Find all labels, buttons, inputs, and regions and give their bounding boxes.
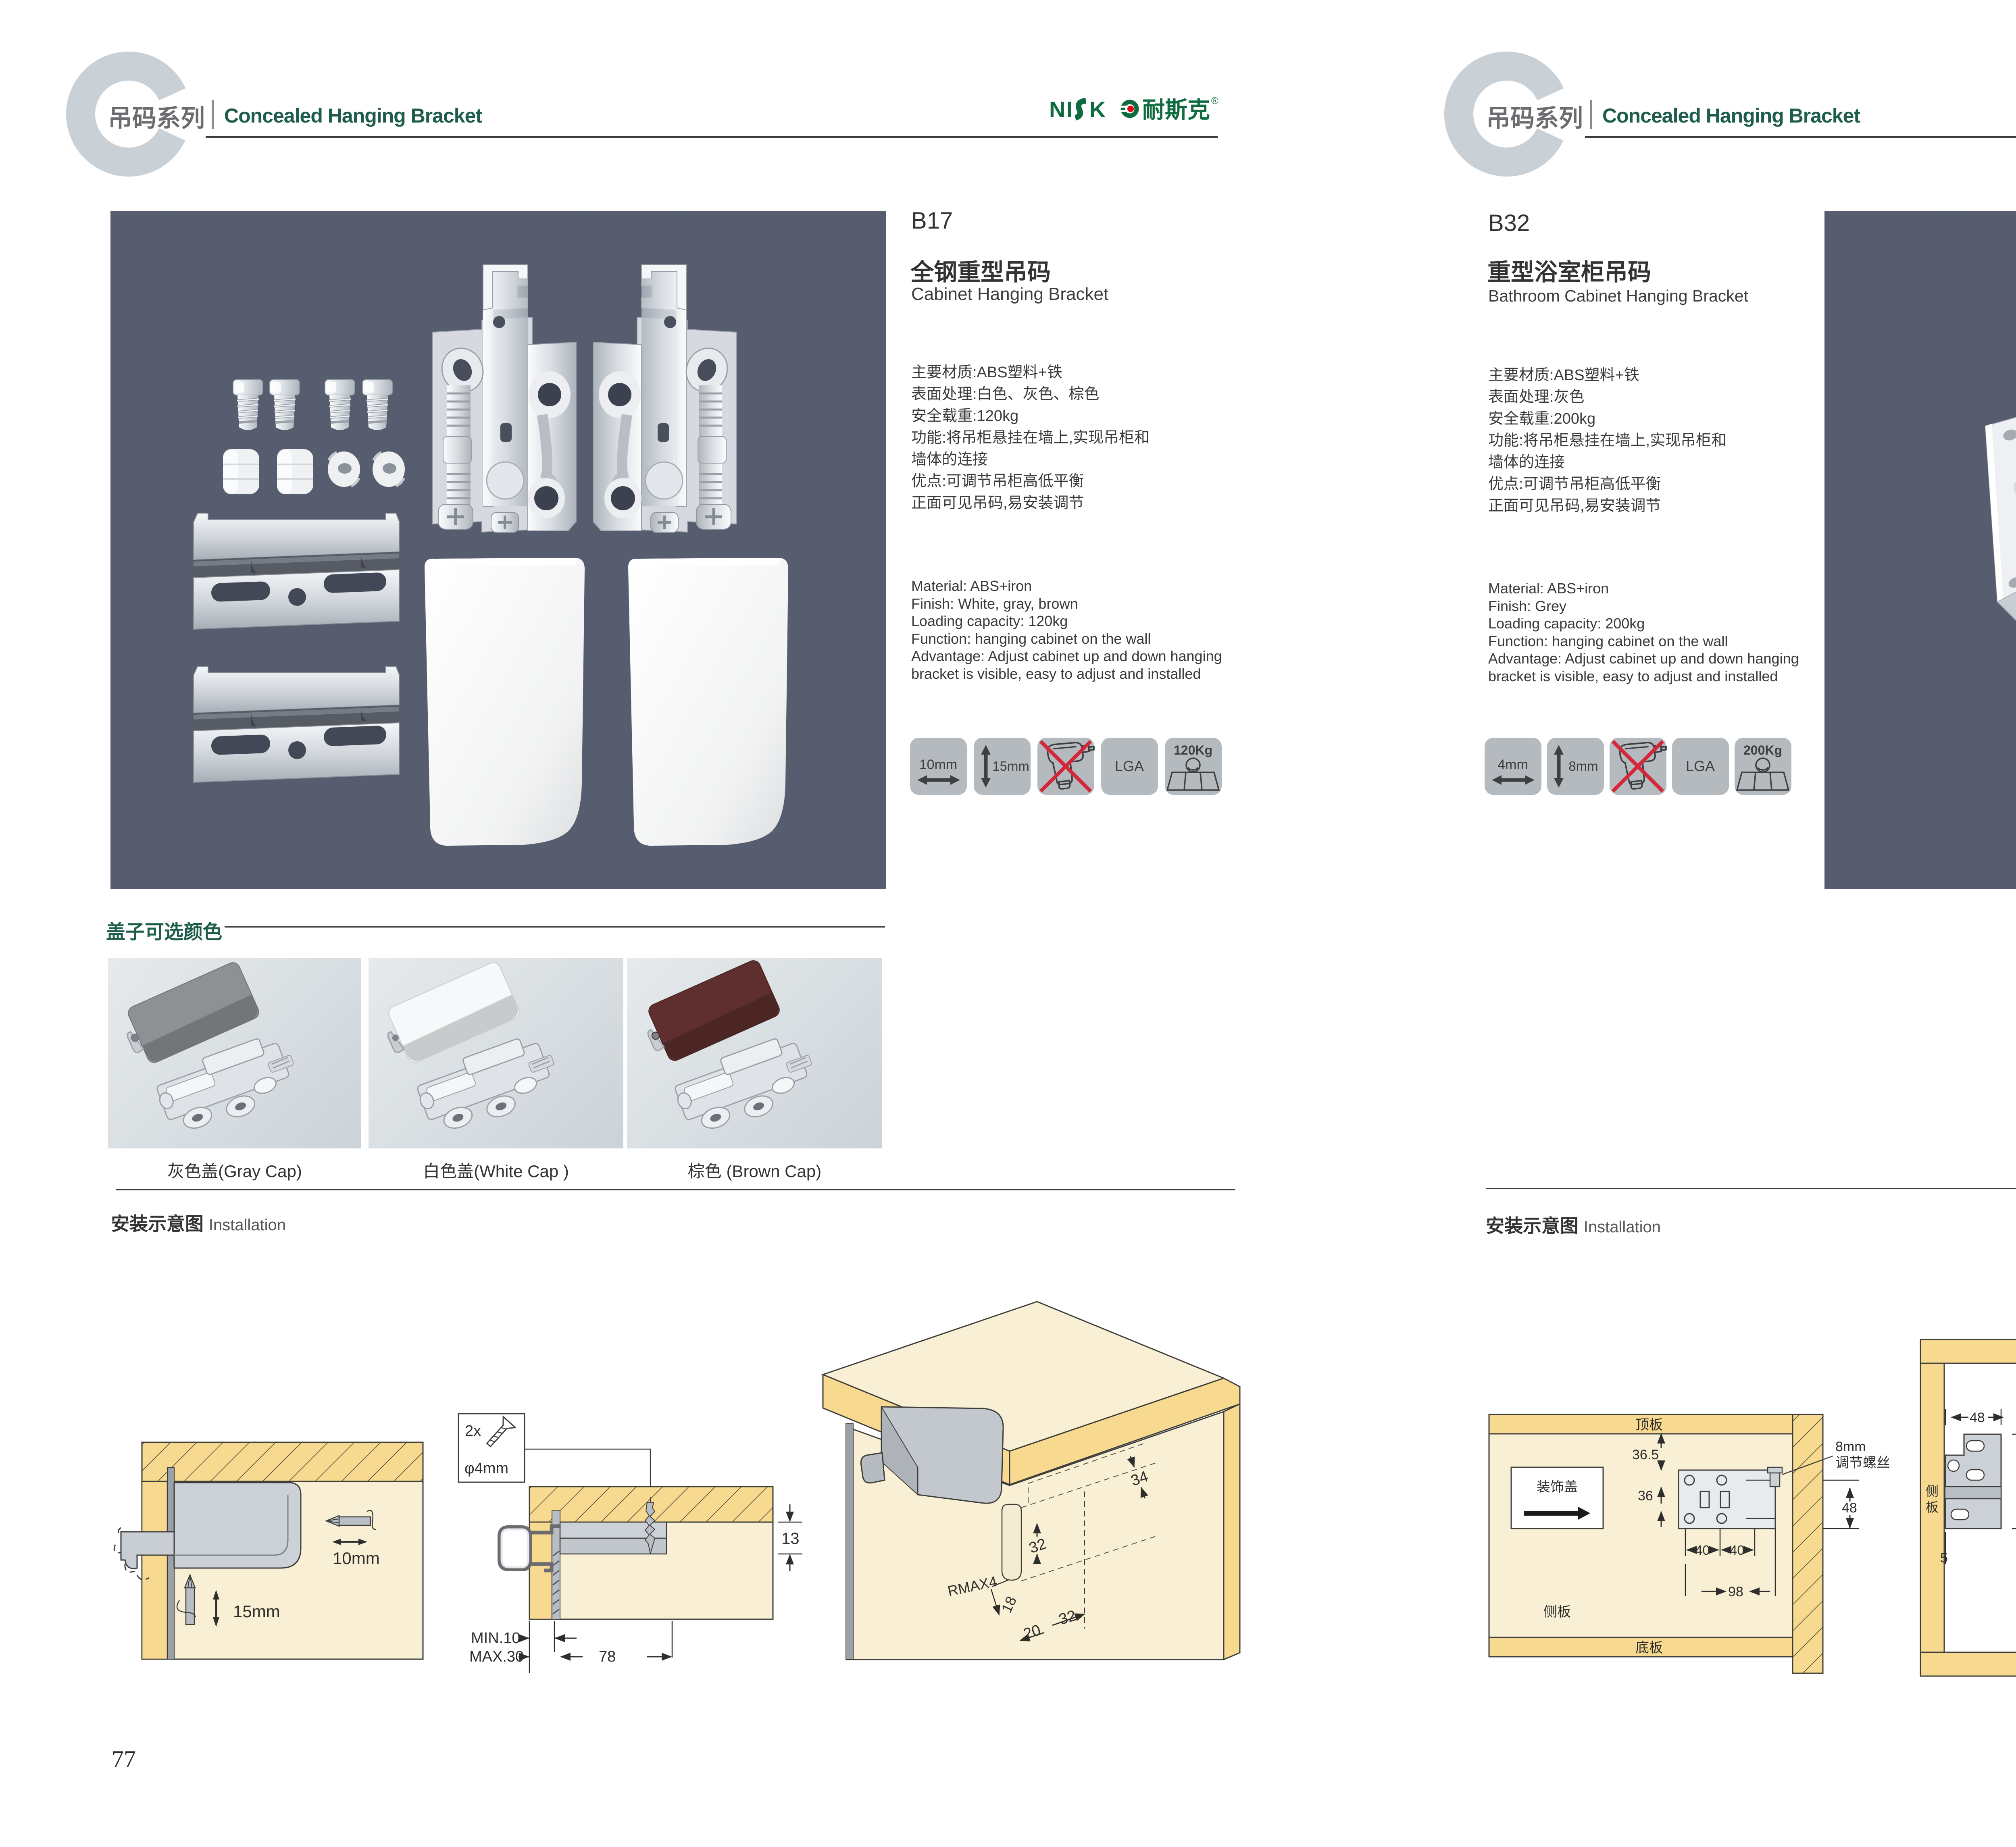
svg-text:调节螺丝: 调节螺丝 <box>1835 1455 1890 1471</box>
svg-text:36.5: 36.5 <box>1632 1447 1659 1462</box>
svg-text:48: 48 <box>1842 1500 1857 1516</box>
svg-text:2x: 2x <box>465 1423 481 1439</box>
svg-text:板: 板 <box>1926 1500 1939 1514</box>
svg-text:MIN.10: MIN.10 <box>471 1630 520 1647</box>
svg-text:36: 36 <box>1638 1488 1653 1504</box>
svg-text:NI: NI <box>1049 97 1073 122</box>
svg-text:装饰盖: 装饰盖 <box>1537 1479 1578 1495</box>
svg-text:8mm: 8mm <box>1568 759 1598 774</box>
svg-text:15mm: 15mm <box>992 759 1029 774</box>
svg-text:LGA: LGA <box>1686 758 1715 774</box>
svg-text:5: 5 <box>1940 1550 1948 1566</box>
svg-text:侧: 侧 <box>1926 1484 1939 1498</box>
svg-text:98: 98 <box>1728 1584 1743 1599</box>
svg-text:K: K <box>1089 97 1106 122</box>
svg-text:15mm: 15mm <box>233 1602 280 1621</box>
svg-text:LGA: LGA <box>1115 758 1144 774</box>
svg-text:8mm: 8mm <box>1835 1439 1866 1454</box>
svg-text:40: 40 <box>1730 1543 1745 1558</box>
svg-text:10mm: 10mm <box>333 1549 380 1568</box>
svg-text:48: 48 <box>1970 1410 1985 1425</box>
svg-text:10mm: 10mm <box>919 757 957 772</box>
svg-text:侧板: 侧板 <box>1543 1604 1571 1620</box>
svg-text:4mm: 4mm <box>1497 757 1528 772</box>
svg-text:底板: 底板 <box>1635 1640 1663 1656</box>
svg-text:13: 13 <box>781 1530 800 1547</box>
svg-text:耐斯克: 耐斯克 <box>1142 97 1210 123</box>
svg-text:φ4mm: φ4mm <box>464 1460 508 1477</box>
svg-text:200Kg: 200Kg <box>1743 743 1782 757</box>
svg-text:120Kg: 120Kg <box>1174 743 1212 757</box>
svg-text:顶板: 顶板 <box>1635 1417 1663 1433</box>
svg-text:®: ® <box>1211 97 1218 106</box>
svg-text:78: 78 <box>599 1648 616 1665</box>
svg-text:40: 40 <box>1695 1543 1710 1558</box>
svg-text:MAX.30: MAX.30 <box>469 1648 524 1665</box>
